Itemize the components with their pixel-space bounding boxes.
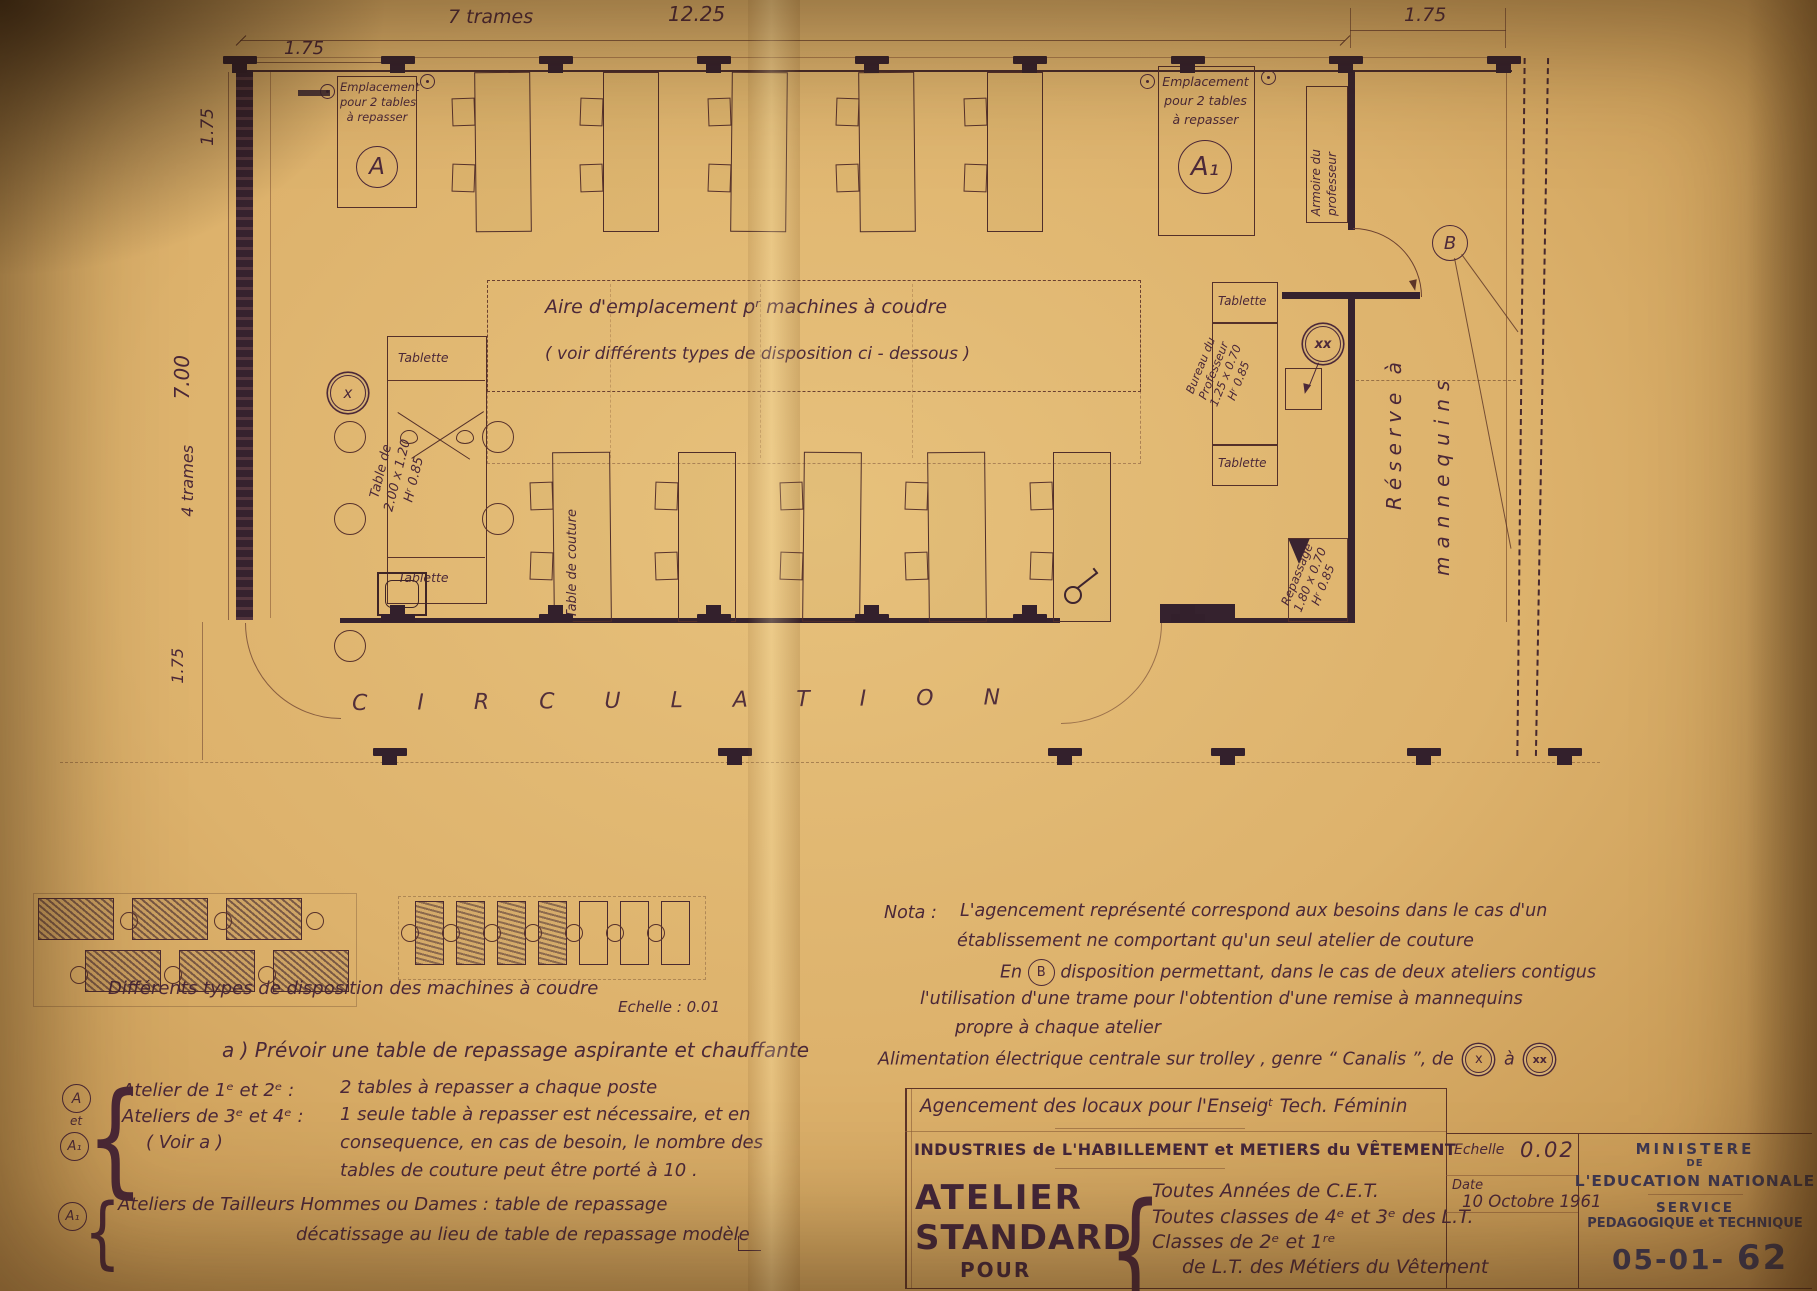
- chair: [905, 482, 929, 511]
- nota-line1: L'agencement représenté correspond aux b…: [960, 901, 1547, 921]
- chair: [580, 164, 604, 193]
- tb-list-4: de L.T. des Métiers du Vêtement: [1182, 1256, 1488, 1278]
- blockA-c1r2: Ateliers de 3ᵉ et 4ᵉ :: [122, 1106, 304, 1127]
- tb-list-3: Classes de 2ᵉ et 1ʳᵉ: [1152, 1231, 1336, 1253]
- chair: [905, 552, 929, 581]
- emplacement-line2: pour 2 tables: [1160, 91, 1251, 110]
- tb-pour: POUR: [960, 1258, 1031, 1282]
- tb-echelle-label: Echelle: [1454, 1142, 1504, 1158]
- b-leader-1: [1461, 254, 1518, 332]
- worktable: [603, 72, 659, 232]
- ceiling-point-icon: [1261, 70, 1276, 85]
- operator-seat: [647, 924, 665, 942]
- tb-cell-sep1: [1446, 1175, 1578, 1176]
- column-mark: [1329, 56, 1363, 64]
- zone-a1-label: A₁: [1178, 140, 1232, 194]
- dim-label-1225: 12.25: [668, 2, 725, 26]
- blockA1-r2: décatissage au lieu de table de repassag…: [296, 1224, 750, 1245]
- operator-seat: [606, 924, 624, 942]
- dim-label-175-top: 1.75: [198, 108, 218, 146]
- wall-shelf: [298, 90, 330, 96]
- dim-label-7trames: 7 trames: [448, 6, 533, 28]
- dim-label-4trames: 4 trames: [178, 445, 197, 517]
- xx-inline-mark: xx: [1526, 1046, 1553, 1073]
- chair: [836, 164, 860, 193]
- blockA-c2r1: 2 tables à repasser a chaque poste: [340, 1077, 657, 1098]
- column-mark: [697, 56, 731, 64]
- trolley-x-mark: x: [330, 375, 366, 411]
- circulation-label: CIRCULATION: [352, 685, 1050, 716]
- tb-left-edge2: [911, 1088, 912, 1289]
- chair: [964, 98, 988, 127]
- wall-left-windows: [236, 70, 253, 620]
- stool: [334, 503, 366, 535]
- alimentation-note: Alimentation électrique centrale sur tro…: [878, 1046, 1559, 1073]
- dim-label-175-right: 1.75: [1404, 4, 1446, 26]
- operator-seat: [442, 924, 460, 942]
- column-mark: [381, 56, 415, 64]
- dim-line-175-right: [1350, 30, 1506, 31]
- tb-bottom: [905, 1288, 1812, 1289]
- b-inline-mark: B: [1028, 959, 1055, 986]
- operator-seat: [164, 966, 182, 984]
- blueprint-sheet: 7 trames 12.25 1.75 1.75 1.75 7.00 4 tra…: [0, 0, 1817, 1291]
- dim-line-left: [228, 72, 229, 620]
- operator-seat: [306, 912, 324, 930]
- tb-top-left: [905, 1088, 1447, 1089]
- dim-ext: [1350, 8, 1351, 48]
- chair: [708, 98, 732, 127]
- sewing-machine: [85, 950, 161, 992]
- tb-left-edge: [905, 1088, 907, 1289]
- tb-date-value: 10 Octobre 1961: [1462, 1192, 1602, 1211]
- tb-underline-1: [1055, 1128, 1245, 1129]
- annotation-a1b-mark: A₁: [58, 1202, 87, 1231]
- tb-standard: STANDARD: [915, 1218, 1132, 1258]
- tb-list-1: Toutes Années de C.E.T.: [1152, 1180, 1379, 1202]
- chair: [530, 552, 554, 581]
- tb-ref-1: 05-01-: [1612, 1243, 1725, 1276]
- tb-top-right: [1446, 1133, 1812, 1134]
- nota-keyword: Nota :: [884, 903, 937, 923]
- table-coupe-divider: [388, 380, 485, 381]
- column-mark: [223, 56, 257, 64]
- tablette-label: Tablette: [1218, 456, 1267, 470]
- operator-seat: [401, 924, 419, 942]
- emplacement-a1-text: Emplacement pour 2 tables à repasser: [1160, 72, 1251, 129]
- x-inline-mark: x: [1465, 1046, 1492, 1073]
- tb-service-2: PEDAGOGIQUE et TECHNIQUE: [1587, 1216, 1802, 1231]
- operator-seat: [214, 912, 232, 930]
- sewing-machine: [620, 901, 649, 965]
- blockA-c2r3: consequence, en cas de besoin, le nombre…: [340, 1132, 763, 1153]
- trolley-xx-mark: xx: [1305, 326, 1341, 362]
- wall-right-dashed-2: [1535, 58, 1549, 756]
- column-mark: [1171, 614, 1205, 622]
- zone-a-label: A: [356, 146, 398, 188]
- tb-ministere-3: L'EDUCATION NATIONALE: [1575, 1172, 1815, 1190]
- nota-line4: l'utilisation d'une trame pour l'obtenti…: [920, 989, 1523, 1009]
- tb-list-2: Toutes classes de 4ᵉ et 3ᵉ des L.T.: [1152, 1206, 1474, 1228]
- tb-underline-2: [1055, 1168, 1225, 1169]
- tb-ref-2: 62: [1737, 1238, 1788, 1278]
- tb-ministere-1: MINISTERE: [1636, 1140, 1755, 1158]
- column-mark: [1013, 614, 1047, 622]
- chair: [964, 164, 988, 193]
- tb-date-label: Date: [1452, 1178, 1483, 1193]
- chair: [780, 482, 804, 511]
- operator-seat: [120, 912, 138, 930]
- column-mark: [1171, 56, 1205, 64]
- armoire-label-1: Armoire du: [1309, 94, 1323, 216]
- dim-line-left-lower: [202, 622, 203, 760]
- column-mark: [855, 614, 889, 622]
- blockA-c2r4: tables de couture peut être porté à 10 .: [340, 1160, 698, 1181]
- column-mark: [539, 614, 573, 622]
- worktable: [987, 72, 1043, 232]
- tb-row1: Agencement des locaux pour l'Enseigᵗ Tec…: [920, 1096, 1407, 1117]
- column-mark: [1407, 748, 1441, 756]
- chair: [1030, 482, 1054, 511]
- operator-seat: [483, 924, 501, 942]
- b-leader-2: [1454, 258, 1511, 549]
- aire-label-1: Aire d'emplacement pʳ machines à coudre: [545, 296, 947, 318]
- operator-seat: [258, 966, 276, 984]
- annotation-a1-mark: A₁: [60, 1132, 89, 1161]
- alimentation-text: Alimentation électrique centrale sur tro…: [878, 1050, 1454, 1070]
- sewing-machine: [179, 950, 255, 992]
- sewing-machine: [415, 901, 444, 965]
- column-mark: [1048, 748, 1082, 756]
- nota-line3-post: disposition permettant, dans le cas de d…: [1060, 963, 1596, 983]
- stool: [482, 503, 514, 535]
- operator-seat: [524, 924, 542, 942]
- sewing-machine: [273, 950, 349, 992]
- couture-table: [552, 452, 612, 623]
- emplacement-line3: à repasser: [1160, 110, 1251, 129]
- column-mark: [1013, 56, 1047, 64]
- couture-table: [678, 452, 736, 622]
- sewing-machine: [579, 901, 608, 965]
- chair: [655, 552, 679, 581]
- nota-line2: établissement ne comportant qu'un seul a…: [957, 931, 1474, 951]
- column-mark: [697, 614, 731, 622]
- dim-label-175-bottom: 1.75: [168, 648, 187, 684]
- aire-label-2: ( voir différents types de disposition c…: [545, 344, 970, 364]
- sewing-machine: [661, 901, 690, 965]
- chair: [530, 482, 554, 511]
- annotation-et: et: [70, 1114, 82, 1128]
- ceiling-point-icon: [420, 74, 435, 89]
- paper-right-edge: [1747, 0, 1817, 1291]
- ceiling-point-icon: [1140, 74, 1155, 89]
- worktable: [474, 72, 532, 233]
- note-a: a ) Prévoir une table de repassage aspir…: [222, 1038, 809, 1062]
- tablette-label: Tablette: [1218, 294, 1267, 308]
- reserve-label-2: mannequins: [1430, 296, 1454, 576]
- site-boundary-dashed: [60, 762, 1600, 763]
- wall-left-inner-line: [270, 72, 271, 618]
- sewing-machine: [538, 901, 567, 965]
- column-mark: [1548, 748, 1582, 756]
- emplacement-line3: à repasser: [340, 110, 414, 125]
- emplacement-line1: Emplacement: [1160, 72, 1251, 91]
- tb-row2: INDUSTRIES de L'HABILLEMENT et METIERS d…: [914, 1140, 1456, 1159]
- dim-label-700: 7.00: [170, 355, 194, 400]
- operator-seat: [70, 966, 88, 984]
- stool: [334, 630, 366, 662]
- operator-seat: [565, 924, 583, 942]
- chair: [655, 482, 679, 511]
- column-mark: [1211, 748, 1245, 756]
- stool: [334, 421, 366, 453]
- tb-service-1: SERVICE: [1656, 1200, 1734, 1216]
- tb-underline-min: [1648, 1194, 1743, 1195]
- sewing-machine: [226, 898, 302, 940]
- column-mark: [718, 748, 752, 756]
- emplacement-line2: pour 2 tables: [340, 95, 414, 110]
- tb-row-sep: [905, 1131, 1447, 1132]
- wall-reserve-upper: [1348, 70, 1355, 230]
- reserve-label-1: Réserve à: [1382, 300, 1406, 510]
- tb-echelle-value: 0.02: [1520, 1138, 1575, 1162]
- chair: [708, 164, 732, 193]
- blockA-c2r2: 1 seule table à repasser est nécessaire,…: [340, 1104, 751, 1125]
- dim-line-1225: [240, 40, 1345, 41]
- sewing-machine: [497, 901, 526, 965]
- armoire-label-2: professeur: [1325, 94, 1339, 216]
- tb-ref: 05-01- 62: [1612, 1238, 1788, 1278]
- dim-ext: [1505, 8, 1506, 48]
- stool: [482, 421, 514, 453]
- dim-line-175-left: [240, 62, 400, 63]
- dim-label-175-left: 1.75: [284, 38, 324, 59]
- emplacement-a-text: Emplacement pour 2 tables à repasser: [340, 80, 414, 125]
- tablette-label: Tablette: [398, 350, 449, 365]
- column-mark: [381, 614, 415, 622]
- wall-right-dashed-1: [1516, 58, 1525, 756]
- alimentation-a: à: [1504, 1050, 1515, 1070]
- chair: [452, 164, 476, 193]
- blockA-c1r1: Atelier de 1ᵉ et 2ᵉ :: [122, 1080, 294, 1101]
- couture-table: [1053, 452, 1111, 622]
- worktable: [730, 72, 788, 233]
- sewing-machine: [38, 898, 114, 940]
- column-mark: [373, 748, 407, 756]
- sewing-machine: [456, 901, 485, 965]
- couture-table: [802, 452, 862, 623]
- chair: [452, 98, 476, 127]
- emplacement-line1: Emplacement: [340, 80, 414, 95]
- column-mark: [855, 56, 889, 64]
- blockA1-r1: Ateliers de Tailleurs Hommes ou Dames : …: [118, 1194, 667, 1215]
- brace-a1: {: [84, 1186, 121, 1278]
- sewing-machine: [132, 898, 208, 940]
- diagrams-echelle: Echelle : 0.01: [618, 998, 720, 1016]
- couture-table: [927, 452, 987, 623]
- chair: [780, 552, 804, 581]
- worktable: [858, 72, 916, 233]
- tb-ministere-2: DE: [1686, 1158, 1703, 1169]
- nota-line3-pre: En: [1000, 963, 1022, 983]
- column-mark: [1487, 56, 1521, 64]
- wall-right-thin: [1506, 62, 1507, 622]
- nota-line3: En B disposition permettant, dans le cas…: [1000, 959, 1596, 986]
- chair: [1030, 552, 1054, 581]
- chair: [836, 98, 860, 127]
- column-mark: [539, 56, 573, 64]
- chair: [580, 98, 604, 127]
- nota-line5: propre à chaque atelier: [955, 1018, 1161, 1038]
- blockA-c1r3: ( Voir a ): [146, 1132, 223, 1153]
- prise-table: [1285, 368, 1322, 410]
- repassage-label: Repassage 1.80 x 0.70 Hʳ 0.85: [1270, 521, 1376, 649]
- corner-mark: [738, 1236, 761, 1251]
- tb-div-2: [1578, 1133, 1579, 1289]
- tb-atelier: ATELIER: [915, 1178, 1083, 1218]
